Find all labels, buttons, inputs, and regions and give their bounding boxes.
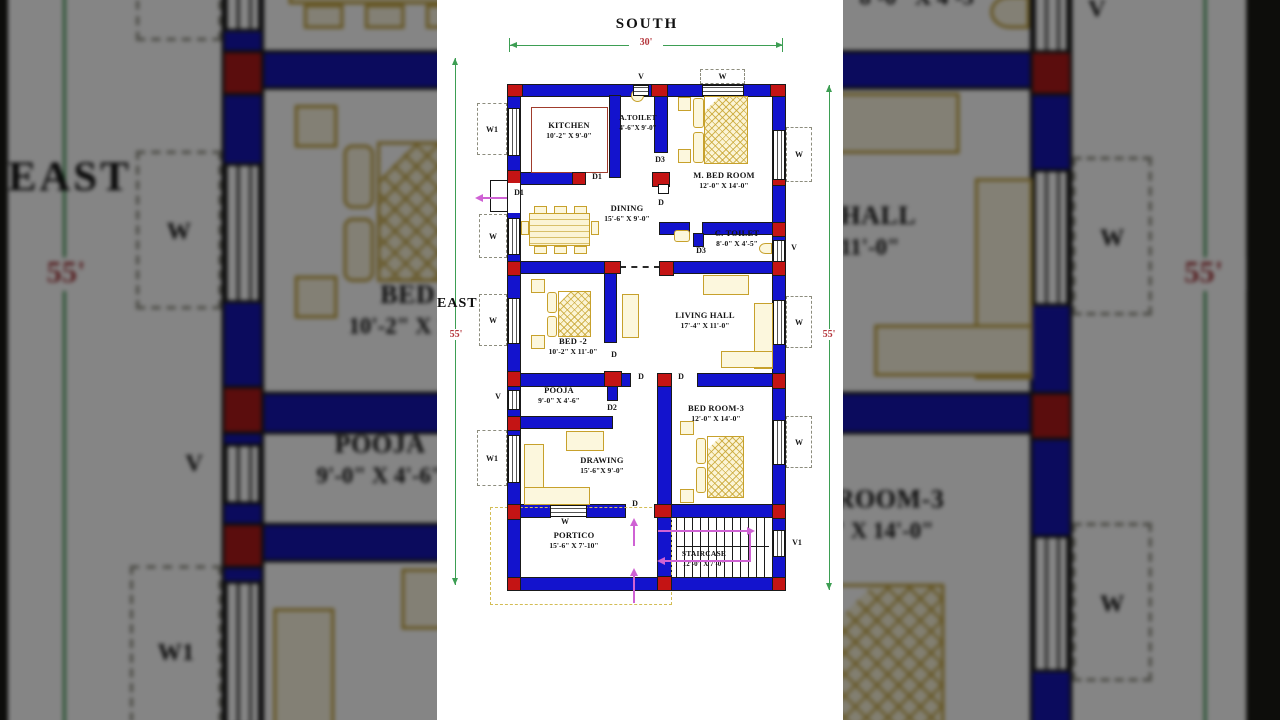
column-block — [508, 262, 520, 275]
window-label-w: W — [795, 150, 803, 159]
dining-table-icon — [529, 213, 590, 246]
dashed-partition-line — [620, 266, 660, 268]
room-size: 12'-0" X 14'-0" — [673, 414, 759, 424]
room-size: 12'-0" X 14'-0" — [685, 181, 763, 191]
door-label-d: D — [608, 350, 620, 360]
bed-fold — [559, 292, 570, 303]
vent-v-pooja — [508, 390, 520, 410]
room-name: LIVING HALL — [663, 310, 747, 321]
room-label-pooja: POOJA9'-0" X 4'-6" — [529, 385, 589, 406]
window-w-livinghall — [773, 300, 785, 345]
pillow-icon — [696, 438, 706, 464]
dimension-arrow — [776, 42, 783, 48]
chair-icon — [554, 246, 567, 254]
room-name: POOJA — [529, 385, 589, 396]
chair-icon — [534, 246, 547, 254]
window-label-w1: W1 — [486, 125, 498, 134]
dimension-arrow — [826, 583, 832, 590]
window-v-top — [633, 85, 649, 96]
window-label-w: W — [795, 318, 803, 327]
floor-plan-panel: SOUTH EAST 30' 55' 55' — [437, 0, 843, 720]
column-block — [605, 372, 621, 386]
window-label-w: W — [489, 316, 497, 325]
column-block — [771, 85, 785, 96]
stair-direction-arrow — [657, 557, 665, 565]
window-label-box: W — [479, 294, 507, 346]
column-block — [658, 374, 671, 386]
room-label-c-toilet: C. TOILET8'-0" X 4'-5" — [705, 228, 769, 249]
room-size: 10'-2" X 11'-0" — [543, 347, 603, 357]
wall-segment — [608, 386, 617, 400]
window-label-w: W — [489, 232, 497, 241]
vent-label-v1: V1 — [787, 538, 807, 548]
door-label-d: D — [629, 499, 641, 509]
vent-label-v: V — [787, 243, 801, 253]
window-label-box: W — [700, 69, 745, 84]
plot-depth-right-dimension: 55' — [815, 329, 843, 340]
room-size: 15'-6" X 7'-10" — [535, 541, 613, 551]
room-name: BED -2 — [543, 336, 603, 347]
wall-segment — [605, 273, 616, 342]
wall-segment — [694, 234, 703, 246]
bed-icon-master — [704, 96, 748, 164]
column-block — [508, 417, 520, 430]
entry-arrow-shaft — [633, 526, 635, 546]
stair-direction-shaft — [749, 530, 751, 562]
chair-icon — [521, 221, 529, 235]
window-label-w: W — [795, 438, 803, 447]
window-w1-drawing — [508, 435, 520, 483]
washbasin-icon — [674, 230, 690, 242]
portico-dashed-outline — [490, 507, 672, 605]
bedside-table-icon — [531, 279, 545, 293]
column-block — [655, 505, 671, 517]
wall-segment — [508, 262, 620, 273]
column-block — [658, 577, 671, 590]
entry-arrow-shaft — [633, 576, 635, 603]
room-name: M. BED ROOM — [685, 170, 763, 181]
vent-label-v: V — [491, 392, 505, 402]
bedside-table-icon — [680, 489, 694, 503]
column-block — [508, 505, 520, 519]
vent-v1-staircase — [773, 530, 785, 557]
wall-segment — [660, 262, 773, 273]
room-size: 15'-6" X 9'-0" — [592, 214, 662, 224]
room-label-staircase: STAIRCASE12'-0" X 7'-0" — [671, 548, 737, 569]
room-label-a-toilet: A.TOILET4'-6"X 9'-0" — [613, 112, 663, 133]
room-size: 9'-0" X 4'-6" — [529, 396, 589, 406]
room-size: 8'-0" X 4'-5" — [705, 239, 769, 249]
room-size: 10'-2" X 9'-0" — [529, 131, 609, 141]
door-leaf-d — [658, 184, 669, 194]
wall-segment — [610, 96, 620, 177]
video-frame: SOUTH EAST 30' 55' 55' — [0, 0, 1280, 720]
dimension-arrow — [452, 578, 458, 585]
entry-arrow — [630, 518, 638, 526]
pillow-icon — [693, 132, 704, 163]
room-label-m-bedroom: M. BED ROOM12'-0" X 14'-0" — [685, 170, 763, 191]
bed-icon-bed2 — [558, 291, 591, 337]
column-block — [773, 374, 785, 388]
bedside-table-icon — [678, 97, 691, 111]
bed-fold — [708, 437, 720, 449]
room-name: KITCHEN — [529, 120, 609, 131]
door-label-d2: D2 — [603, 403, 621, 413]
window-label-w: W — [557, 517, 573, 527]
plot-width-dimension: 30' — [629, 37, 663, 48]
window-w-bed2 — [508, 298, 520, 344]
room-label-portico: PORTICO15'-6" X 7'-10" — [535, 530, 613, 551]
room-label-bed2: BED -210'-2" X 11'-0" — [543, 336, 603, 357]
door-label-d: D — [675, 372, 687, 382]
compass-south-label: SOUTH — [577, 16, 717, 33]
room-size: 17'-4" X 11'-0" — [663, 321, 747, 331]
door-label-d1: D1 — [588, 172, 606, 182]
window-w-mbedroom — [773, 130, 785, 180]
room-label-living-hall: LIVING HALL17'-4" X 11'-0" — [663, 310, 747, 331]
column-block — [508, 85, 522, 96]
window-label-v: V — [633, 72, 649, 82]
dimension-arrow — [826, 85, 832, 92]
window-w-dining — [508, 218, 520, 255]
door-label-d3: D3 — [651, 155, 669, 165]
door-swing-arrow — [475, 194, 483, 202]
column-block — [508, 372, 520, 386]
wall-segment — [671, 505, 773, 517]
wall-segment — [508, 417, 612, 428]
window-w-top — [702, 85, 744, 96]
bedside-table-icon — [678, 149, 691, 163]
room-name: DINING — [592, 203, 662, 214]
room-label-dining: DINING15'-6" X 9'-0" — [592, 203, 662, 224]
plot-depth-left-dimension: 55' — [443, 329, 469, 340]
pillow-icon — [696, 467, 706, 493]
window-label-box: W — [786, 416, 812, 468]
room-label-bedroom3: BED ROOM-312'-0" X 14'-0" — [673, 403, 759, 424]
window-label-w: W — [719, 72, 727, 81]
window-label-w1: W1 — [486, 454, 498, 463]
column-block — [773, 223, 785, 236]
column-block — [508, 578, 520, 590]
door-label-d: D — [635, 372, 647, 382]
stair-direction-shaft — [658, 530, 751, 532]
entry-arrow — [630, 568, 638, 576]
column-block — [573, 173, 585, 184]
room-name: STAIRCASE — [671, 548, 737, 559]
sofa-icon — [524, 487, 590, 505]
vent-v-ctoilet — [773, 240, 785, 262]
pillow-icon — [547, 292, 557, 313]
window-w-bedroom3 — [773, 420, 785, 465]
room-size: 15'-6"X 9'-0" — [565, 466, 639, 476]
bed-fold — [705, 97, 719, 111]
dimension-arrow — [452, 58, 458, 65]
window-label-box: W — [479, 214, 507, 258]
room-name: DRAWING — [565, 455, 639, 466]
column-block — [652, 85, 667, 96]
column-block — [773, 578, 785, 590]
room-name: BED ROOM-3 — [673, 403, 759, 414]
pillow-icon — [547, 316, 557, 337]
dimension-arrow — [510, 42, 517, 48]
compass-east-label: EAST — [437, 296, 478, 312]
room-name: A.TOILET — [613, 112, 663, 123]
room-label-drawing: DRAWING15'-6"X 9'-0" — [565, 455, 639, 476]
bed-icon-bedroom3 — [707, 436, 744, 498]
door-swing-arrow-shaft — [483, 197, 507, 199]
sofa-icon — [703, 275, 749, 295]
window-w1-kitchen — [508, 108, 520, 156]
column-block — [773, 262, 785, 275]
sofa-icon — [721, 351, 773, 368]
chair-icon — [574, 246, 587, 254]
window-label-box: W1 — [477, 430, 507, 486]
stairs-landing-line — [676, 546, 769, 547]
window-label-box: W — [786, 127, 812, 182]
coffee-table-icon — [566, 431, 604, 451]
window-label-box: W — [786, 296, 812, 348]
door-label-d1: D1 — [510, 188, 528, 198]
stair-direction-shaft — [665, 560, 751, 562]
window-w-portico — [550, 505, 587, 517]
room-label-kitchen: KITCHEN10'-2" X 9'-0" — [529, 120, 609, 141]
column-block — [660, 262, 673, 275]
door-leaf-d1 — [490, 180, 508, 212]
window-label-box: W1 — [477, 103, 507, 155]
room-name: C. TOILET — [705, 228, 769, 239]
column-block — [773, 505, 785, 518]
column-block — [605, 262, 620, 273]
pillow-icon — [693, 98, 704, 128]
room-size: 4'-6"X 9'-0" — [613, 123, 663, 133]
wall-segment — [698, 374, 773, 386]
dimension-line-left — [455, 58, 456, 585]
room-name: PORTICO — [535, 530, 613, 541]
cabinet-icon — [622, 294, 639, 338]
